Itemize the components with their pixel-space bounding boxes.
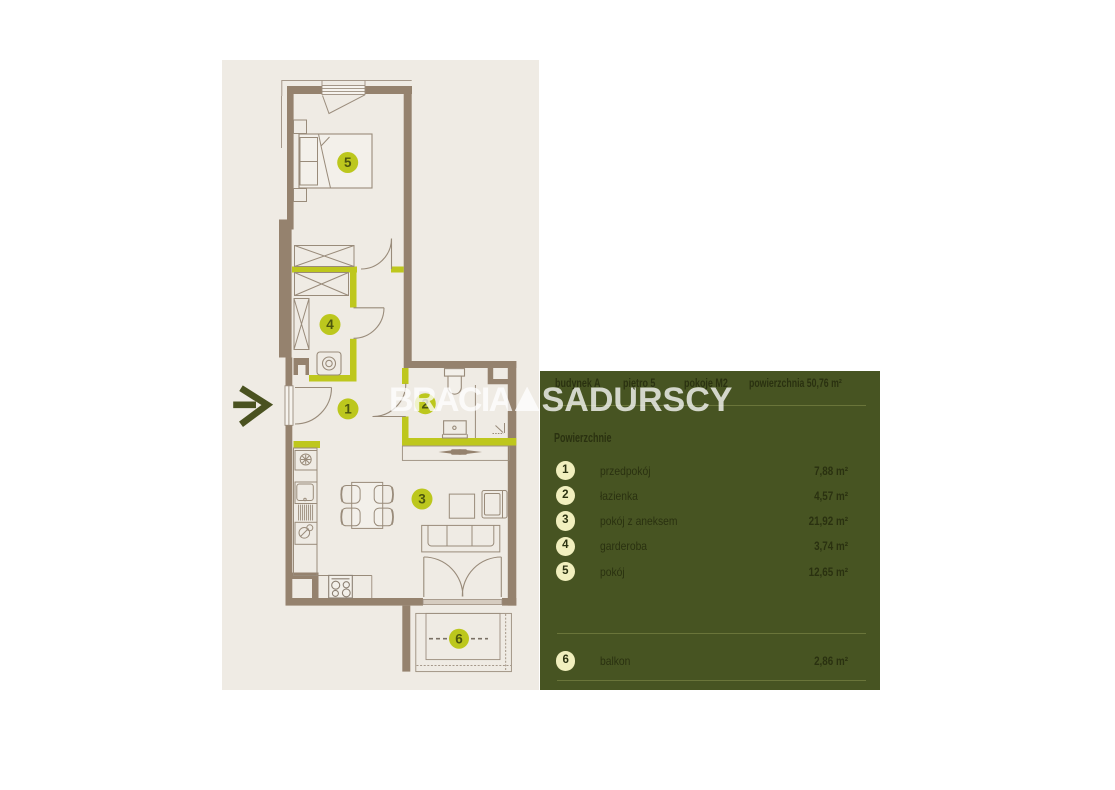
- svg-text:1: 1: [344, 402, 352, 417]
- svg-text:5: 5: [344, 155, 352, 170]
- svg-text:3: 3: [418, 492, 426, 507]
- svg-text:6: 6: [455, 631, 463, 646]
- svg-text:4: 4: [326, 317, 334, 332]
